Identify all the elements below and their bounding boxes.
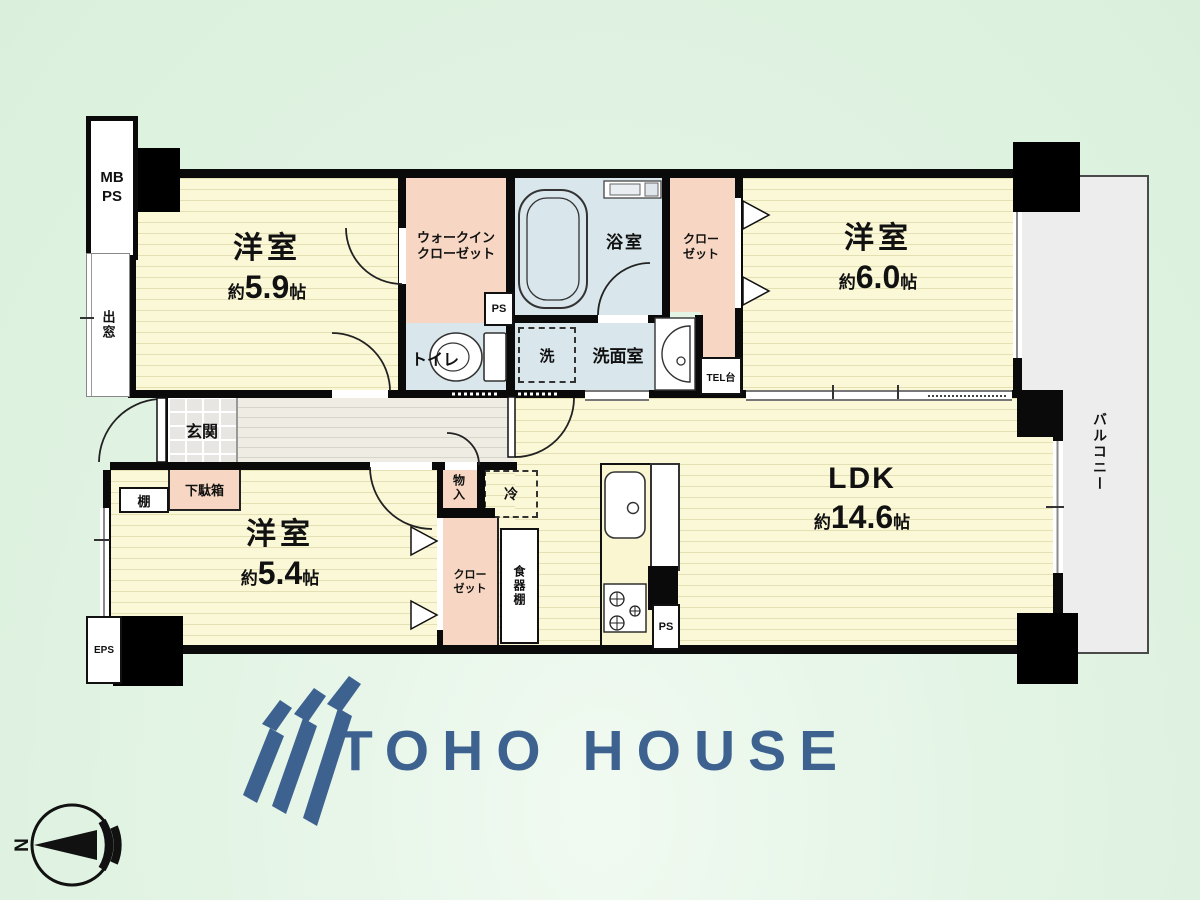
- bedroom1-label: 洋室 約5.9帖: [167, 232, 367, 306]
- tel-stand-box: TEL台: [700, 357, 742, 395]
- bedroom2-num: 6.0: [856, 259, 900, 295]
- bedroom1-closet-door-gap: [399, 228, 406, 284]
- ps-kitchen-label: PS: [659, 621, 674, 633]
- meter-box-label-ps: PS: [100, 188, 123, 207]
- washing-machine-space: 洗: [518, 327, 576, 383]
- bedroom1-unit: 帖: [289, 283, 306, 302]
- bedroom2-label: 洋室 約6.0帖: [778, 222, 978, 296]
- logo-stripe-3-cap: [327, 676, 361, 712]
- bedroom2-name: 洋室: [778, 222, 978, 255]
- wall-bottom: [110, 645, 1022, 654]
- wic-label: ウォークイン クローゼット: [406, 230, 506, 263]
- ldk-approx: 約: [814, 513, 831, 532]
- bedroom2-window: [1013, 212, 1022, 358]
- bay-window-label: 出窓: [99, 310, 118, 340]
- logo-stripe-2-cap: [294, 688, 326, 722]
- washroom-sliding-door: [585, 390, 649, 401]
- eps-label: EPS: [94, 645, 114, 656]
- bedroom3-num: 5.4: [258, 555, 302, 591]
- closet-bottom: クローゼット: [441, 516, 499, 649]
- kitchen-side-counter: [650, 463, 680, 571]
- entrance-step-line: [236, 397, 238, 462]
- bedroom2-size: 約6.0帖: [778, 259, 978, 296]
- bedroom1-size: 約5.9帖: [167, 269, 367, 306]
- wall-top: [122, 169, 1017, 178]
- ldk-unit: 帖: [893, 513, 910, 532]
- closet-bottom-door-strip: [437, 518, 443, 630]
- kitchen-counter: [600, 463, 654, 649]
- refrigerator-label: 冷: [504, 484, 518, 504]
- ldk-size: 約14.6帖: [762, 499, 962, 536]
- bedroom1-name: 洋室: [167, 232, 367, 265]
- wall-wic-right: [506, 176, 515, 398]
- bedroom2-unit: 帖: [900, 273, 917, 292]
- washroom-label: 洗面室: [576, 342, 660, 367]
- compass: N: [12, 805, 118, 885]
- front-door-arc: [99, 399, 158, 462]
- shelf-box: 棚: [119, 487, 169, 513]
- storage-box: 物入: [441, 466, 477, 510]
- shelf-label: 棚: [137, 491, 150, 510]
- washing-machine-label: 洗: [539, 345, 554, 366]
- hallway-floor: [238, 397, 513, 462]
- bedroom3-size: 約5.4帖: [180, 555, 380, 592]
- floor-plan-page: 下駄箱 棚 物入 クローゼット 冷 食器棚 洗 MB: [0, 0, 1200, 900]
- ldk-num: 14.6: [831, 499, 893, 535]
- closet-top-label-line1: クロー: [664, 232, 738, 247]
- bedroom3-window: [100, 508, 109, 616]
- ps-box-kitchen: PS: [652, 604, 680, 650]
- logo-stripe-1-cap: [262, 700, 292, 731]
- partition-dotted-track: [928, 392, 1006, 397]
- dish-cabinet: 食器棚: [500, 528, 539, 644]
- bedroom3-door-gap: [370, 462, 432, 470]
- closet-top-floor-column: [701, 312, 735, 357]
- eps-box: EPS: [86, 616, 122, 684]
- bedroom2-approx: 約: [839, 273, 856, 292]
- wall-left-step: [110, 462, 166, 470]
- toilet-label: トイレ: [404, 346, 466, 370]
- bedroom1-door-gap: [332, 390, 388, 398]
- pillar-bottom-right: [1017, 613, 1078, 684]
- logo-stripe-1: [243, 728, 284, 803]
- bedroom2-sliding-partition: [746, 390, 1012, 401]
- pillar-top-right: [1013, 142, 1080, 212]
- wall-ldk-right-upper: [1053, 397, 1063, 443]
- toho-house-logo-text: TOHO HOUSE: [338, 718, 958, 784]
- storage-label: 物入: [451, 474, 468, 502]
- compass-needle: [34, 830, 97, 860]
- entrance-label: 玄関: [170, 418, 234, 442]
- pillar-bottom-left: [113, 616, 183, 686]
- balcony-label: バルコニー: [1090, 392, 1110, 512]
- closet-top-label: クロー ゼット: [664, 232, 738, 262]
- bath-label: 浴室: [585, 228, 665, 253]
- bedroom3-approx: 約: [241, 569, 258, 588]
- wall-ldk-right-lower: [1053, 573, 1063, 617]
- bedroom1-num: 5.9: [245, 269, 289, 305]
- bedroom3-unit: 帖: [302, 569, 319, 588]
- ldk-name: LDK: [762, 462, 962, 495]
- meter-box-label-mb: MB: [100, 169, 123, 188]
- ps-box-wic: PS: [484, 292, 514, 326]
- wic-label-line2: クローゼット: [406, 246, 506, 262]
- ldk-window: [1053, 441, 1063, 573]
- closet-bottom-label1: クロー: [454, 569, 487, 583]
- ps-wic-label: PS: [492, 303, 507, 315]
- bay-window: 出窓: [86, 253, 130, 397]
- tel-stand-label: TEL台: [707, 369, 736, 384]
- ldk-label: LDK 約14.6帖: [762, 462, 962, 536]
- bedroom3-name: 洋室: [180, 518, 380, 551]
- logo-stripe-2: [272, 718, 317, 814]
- wall-closet-block: [665, 350, 703, 390]
- wall-storage-bottom: [441, 508, 495, 518]
- shoe-cabinet-label: 下駄箱: [185, 480, 224, 499]
- bedroom1-approx: 約: [228, 283, 245, 302]
- compass-north-label: N: [12, 838, 33, 852]
- bedroom3-label: 洋室 約5.4帖: [180, 518, 380, 592]
- dish-cabinet-label: 食器棚: [511, 565, 528, 607]
- storage-door-gap: [445, 462, 477, 470]
- wic-label-line1: ウォークイン: [406, 230, 506, 246]
- closet-bottom-label2: ゼット: [454, 583, 487, 597]
- meter-box: MBPS: [86, 116, 138, 260]
- closet-top-label-line2: ゼット: [664, 247, 738, 262]
- compass-circle: [32, 805, 112, 885]
- compass-band-2: [114, 827, 118, 863]
- wall-entrance-left: [158, 392, 168, 470]
- bath-door-gap: [598, 315, 648, 323]
- compass-band-1: [102, 821, 109, 869]
- shoe-cabinet: 下駄箱: [168, 468, 241, 511]
